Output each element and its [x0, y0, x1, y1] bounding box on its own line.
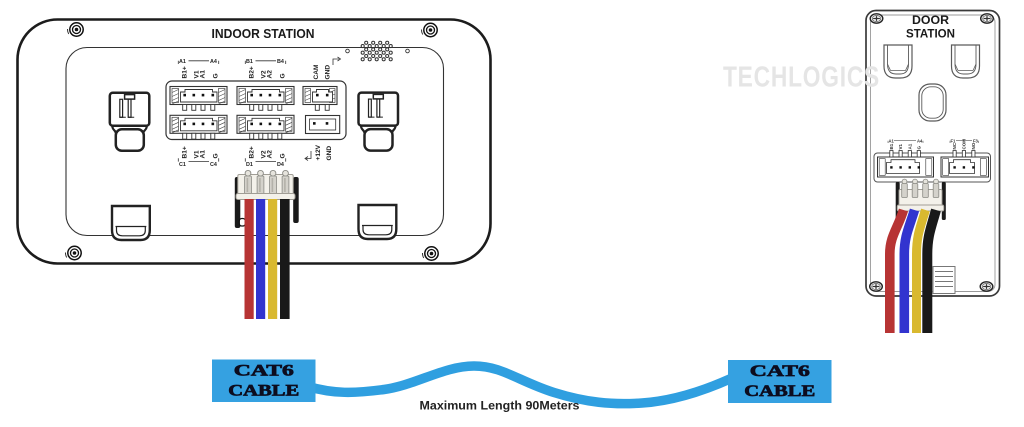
- svg-text:V1: V1: [898, 143, 903, 149]
- svg-text:D1: D1: [246, 162, 253, 168]
- svg-text:CAM: CAM: [313, 64, 320, 80]
- svg-text:+12V: +12V: [315, 144, 322, 160]
- svg-text:A2: A2: [267, 70, 274, 79]
- svg-text:A1: A1: [889, 139, 895, 144]
- svg-text:A1: A1: [179, 59, 186, 65]
- svg-text:C4: C4: [210, 162, 217, 168]
- svg-text:GND: GND: [326, 146, 333, 161]
- svg-text:B1+: B1+: [182, 66, 189, 78]
- svg-text:B2+: B2+: [249, 146, 256, 158]
- svg-text:A4: A4: [917, 139, 923, 144]
- svg-text:G: G: [280, 153, 287, 158]
- svg-text:A1: A1: [200, 70, 207, 79]
- svg-text:DOOR: DOOR: [912, 13, 949, 27]
- svg-text:TECHLOGICS: TECHLOGICS: [723, 62, 880, 94]
- svg-text:CABLE: CABLE: [744, 383, 815, 400]
- svg-text:GND: GND: [325, 65, 332, 80]
- svg-text:F3: F3: [973, 139, 979, 144]
- svg-text:INDOOR STATION: INDOOR STATION: [212, 26, 315, 41]
- svg-text:B1: B1: [889, 143, 894, 149]
- svg-text:G: G: [916, 146, 921, 150]
- svg-text:D4: D4: [277, 162, 284, 168]
- svg-text:A2: A2: [267, 150, 274, 159]
- svg-text:A1: A1: [907, 143, 912, 149]
- svg-text:COM: COM: [962, 139, 967, 150]
- svg-text:G: G: [280, 73, 287, 78]
- svg-text:G: G: [213, 73, 220, 78]
- svg-text:F1: F1: [951, 139, 957, 144]
- svg-text:G: G: [213, 153, 220, 158]
- svg-text:B2+: B2+: [249, 66, 256, 78]
- svg-text:C1: C1: [179, 162, 186, 168]
- svg-text:CAT6: CAT6: [750, 363, 810, 380]
- svg-text:A1: A1: [200, 150, 207, 159]
- svg-text:CABLE: CABLE: [228, 383, 299, 400]
- svg-text:A4: A4: [210, 59, 217, 65]
- svg-text:Maximum Length 90Meters: Maximum Length 90Meters: [420, 401, 580, 413]
- svg-text:B4: B4: [277, 59, 284, 65]
- svg-text:CAT6: CAT6: [234, 363, 294, 380]
- svg-text:STATION: STATION: [906, 27, 955, 41]
- svg-text:B1+: B1+: [182, 146, 189, 158]
- svg-text:B1: B1: [246, 59, 253, 65]
